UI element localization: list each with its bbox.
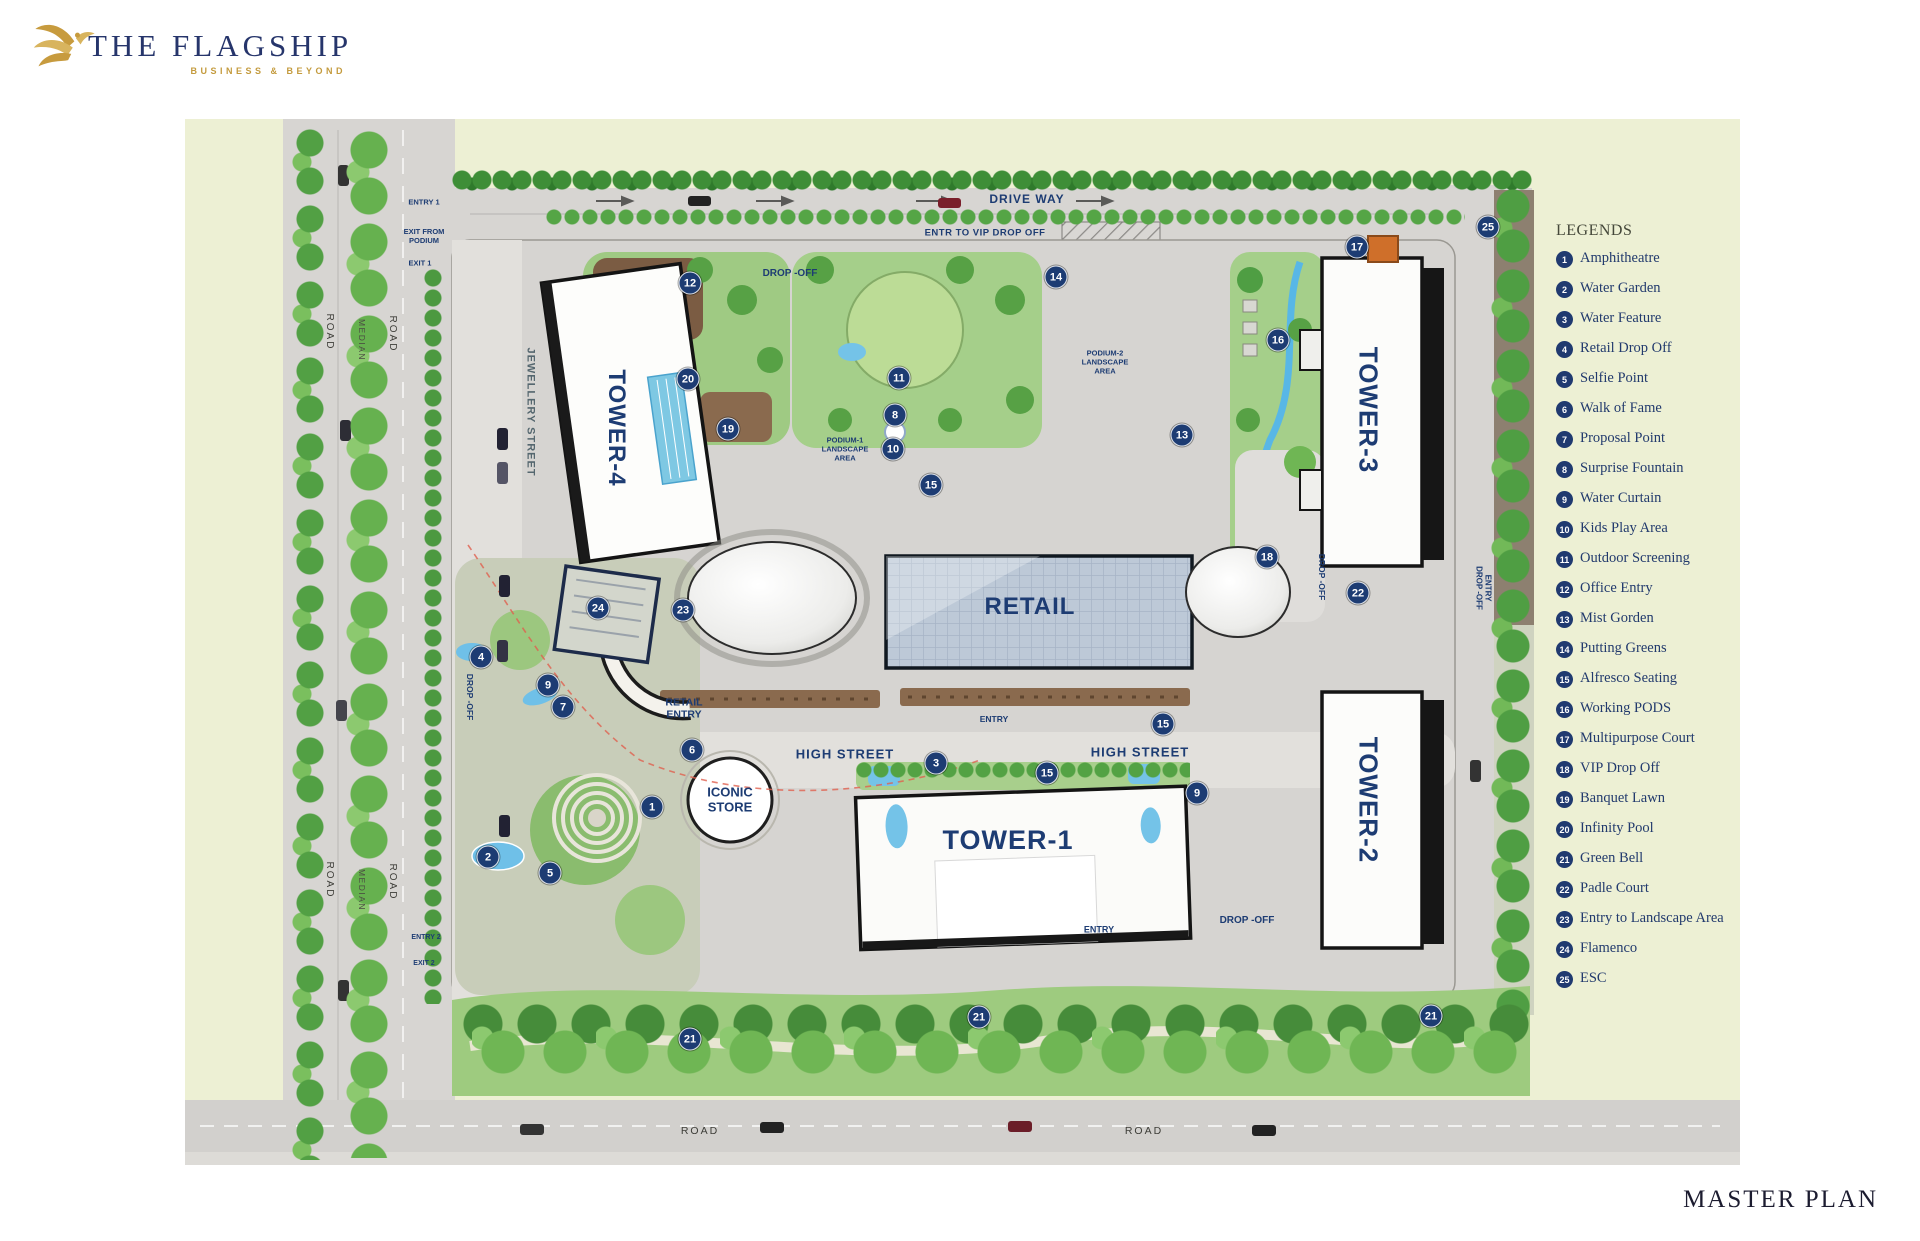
legend-label: Putting Greens: [1580, 640, 1667, 656]
car-icon: [760, 1122, 784, 1133]
car-icon: [497, 640, 508, 662]
legend-bullet-14: 14: [1556, 641, 1573, 658]
legend-item-7: 7Proposal Point: [1556, 430, 1734, 448]
car-icon: [688, 196, 711, 206]
legend-label: Retail Drop Off: [1580, 340, 1672, 356]
tower1-north-garden: [856, 762, 1190, 790]
car-icon: [1252, 1125, 1276, 1136]
legend-item-19: 19Banquet Lawn: [1556, 790, 1734, 808]
flamenco-building: [554, 566, 659, 662]
legend-label: Amphitheatre: [1580, 250, 1660, 266]
car-icon: [338, 980, 349, 1001]
legend-item-2: 2Water Garden: [1556, 280, 1734, 298]
legend-bullet-7: 7: [1556, 431, 1573, 448]
legend-item-14: 14Putting Greens: [1556, 640, 1734, 658]
page-title: MASTER PLAN: [1683, 1186, 1878, 1214]
car-icon: [520, 1124, 544, 1135]
legend-label: Selfie Point: [1580, 370, 1648, 386]
legend-label: Surprise Fountain: [1580, 460, 1684, 476]
legend-label: Flamenco: [1580, 940, 1637, 956]
tower-1-building: [856, 786, 1191, 949]
south-road: [185, 1100, 1740, 1165]
legend-bullet-20: 20: [1556, 821, 1573, 838]
legend-bullet-5: 5: [1556, 371, 1573, 388]
legend-panel: LEGENDS 1Amphitheatre2Water Garden3Water…: [1556, 222, 1734, 1000]
working-pod: [1243, 322, 1257, 334]
legend-item-11: 11Outdoor Screening: [1556, 550, 1734, 568]
car-icon: [497, 462, 508, 484]
legend-label: Working PODS: [1580, 700, 1671, 716]
car-icon: [499, 815, 510, 837]
car-icon: [1008, 1121, 1032, 1132]
legend-item-6: 6Walk of Fame: [1556, 400, 1734, 418]
legend-bullet-8: 8: [1556, 461, 1573, 478]
legend-item-4: 4Retail Drop Off: [1556, 340, 1734, 358]
legend-bullet-9: 9: [1556, 491, 1573, 508]
legend-title: LEGENDS: [1556, 222, 1734, 240]
retail-east-canopy: [1186, 547, 1290, 637]
legend-item-9: 9Water Curtain: [1556, 490, 1734, 508]
car-icon: [938, 198, 961, 208]
legend-bullet-19: 19: [1556, 791, 1573, 808]
legend-bullet-18: 18: [1556, 761, 1573, 778]
legend-item-20: 20Infinity Pool: [1556, 820, 1734, 838]
legend-bullet-11: 11: [1556, 551, 1573, 568]
legend-item-21: 21Green Bell: [1556, 850, 1734, 868]
legend-label: Outdoor Screening: [1580, 550, 1690, 566]
legend-label: Entry to Landscape Area: [1580, 910, 1724, 926]
legend-label: VIP Drop Off: [1580, 760, 1660, 776]
legend-bullet-4: 4: [1556, 341, 1573, 358]
retail-west-canopy: [677, 532, 867, 664]
iconic-store-building: [681, 751, 779, 849]
tower-2-building: [1322, 692, 1444, 948]
legend-bullet-15: 15: [1556, 671, 1573, 688]
working-pod: [1243, 300, 1257, 312]
legend-label: Proposal Point: [1580, 430, 1665, 446]
legend-list: 1Amphitheatre2Water Garden3Water Feature…: [1556, 250, 1734, 988]
legend-bullet-13: 13: [1556, 611, 1573, 628]
legend-label: Kids Play Area: [1580, 520, 1668, 536]
legend-label: Mist Gorden: [1580, 610, 1654, 626]
car-icon: [497, 428, 508, 450]
legend-item-24: 24Flamenco: [1556, 940, 1734, 958]
legend-label: Walk of Fame: [1580, 400, 1662, 416]
legend-label: Banquet Lawn: [1580, 790, 1665, 806]
legend-item-1: 1Amphitheatre: [1556, 250, 1734, 268]
car-icon: [338, 165, 349, 186]
legend-item-23: 23Entry to Landscape Area: [1556, 910, 1734, 928]
multipurpose-court: [1368, 236, 1398, 262]
legend-label: Water Feature: [1580, 310, 1661, 326]
west-road: [283, 119, 455, 1165]
retail-building: [886, 556, 1192, 668]
legend-item-15: 15Alfresco Seating: [1556, 670, 1734, 688]
legend-bullet-25: 25: [1556, 971, 1573, 988]
legend-item-22: 22Padle Court: [1556, 880, 1734, 898]
legend-label: Green Bell: [1580, 850, 1643, 866]
working-pod: [1243, 344, 1257, 356]
car-icon: [336, 700, 347, 721]
alfresco-decks: [660, 688, 1190, 708]
legend-item-17: 17Multipurpose Court: [1556, 730, 1734, 748]
legend-bullet-2: 2: [1556, 281, 1573, 298]
legend-bullet-3: 3: [1556, 311, 1573, 328]
legend-item-25: 25ESC: [1556, 970, 1734, 988]
legend-item-3: 3Water Feature: [1556, 310, 1734, 328]
legend-bullet-1: 1: [1556, 251, 1573, 268]
tower-3-building: [1300, 258, 1444, 566]
legend-bullet-6: 6: [1556, 401, 1573, 418]
legend-label: Water Curtain: [1580, 490, 1661, 506]
car-icon: [499, 575, 510, 597]
legend-label: Water Garden: [1580, 280, 1661, 296]
page-root: THE FLAGSHIP BUSINESS & BEYOND: [0, 0, 1920, 1241]
legend-label: Padle Court: [1580, 880, 1649, 896]
legend-item-8: 8Surprise Fountain: [1556, 460, 1734, 478]
legend-item-12: 12Office Entry: [1556, 580, 1734, 598]
legend-label: Multipurpose Court: [1580, 730, 1695, 746]
legend-label: Infinity Pool: [1580, 820, 1654, 836]
legend-item-5: 5Selfie Point: [1556, 370, 1734, 388]
legend-bullet-21: 21: [1556, 851, 1573, 868]
legend-item-18: 18VIP Drop Off: [1556, 760, 1734, 778]
south-green-band: [452, 986, 1530, 1096]
legend-label: Alfresco Seating: [1580, 670, 1677, 686]
legend-bullet-24: 24: [1556, 941, 1573, 958]
legend-item-10: 10Kids Play Area: [1556, 520, 1734, 538]
esc-band: [1494, 190, 1534, 625]
legend-label: ESC: [1580, 970, 1607, 986]
car-icon: [1470, 760, 1481, 782]
car-icon: [340, 420, 351, 441]
legend-bullet-10: 10: [1556, 521, 1573, 538]
legend-bullet-17: 17: [1556, 731, 1573, 748]
legend-item-16: 16Working PODS: [1556, 700, 1734, 718]
legend-item-13: 13Mist Gorden: [1556, 610, 1734, 628]
legend-bullet-16: 16: [1556, 701, 1573, 718]
legend-bullet-12: 12: [1556, 581, 1573, 598]
legend-bullet-23: 23: [1556, 911, 1573, 928]
legend-label: Office Entry: [1580, 580, 1653, 596]
legend-bullet-22: 22: [1556, 881, 1573, 898]
east-road: [1444, 185, 1534, 1015]
